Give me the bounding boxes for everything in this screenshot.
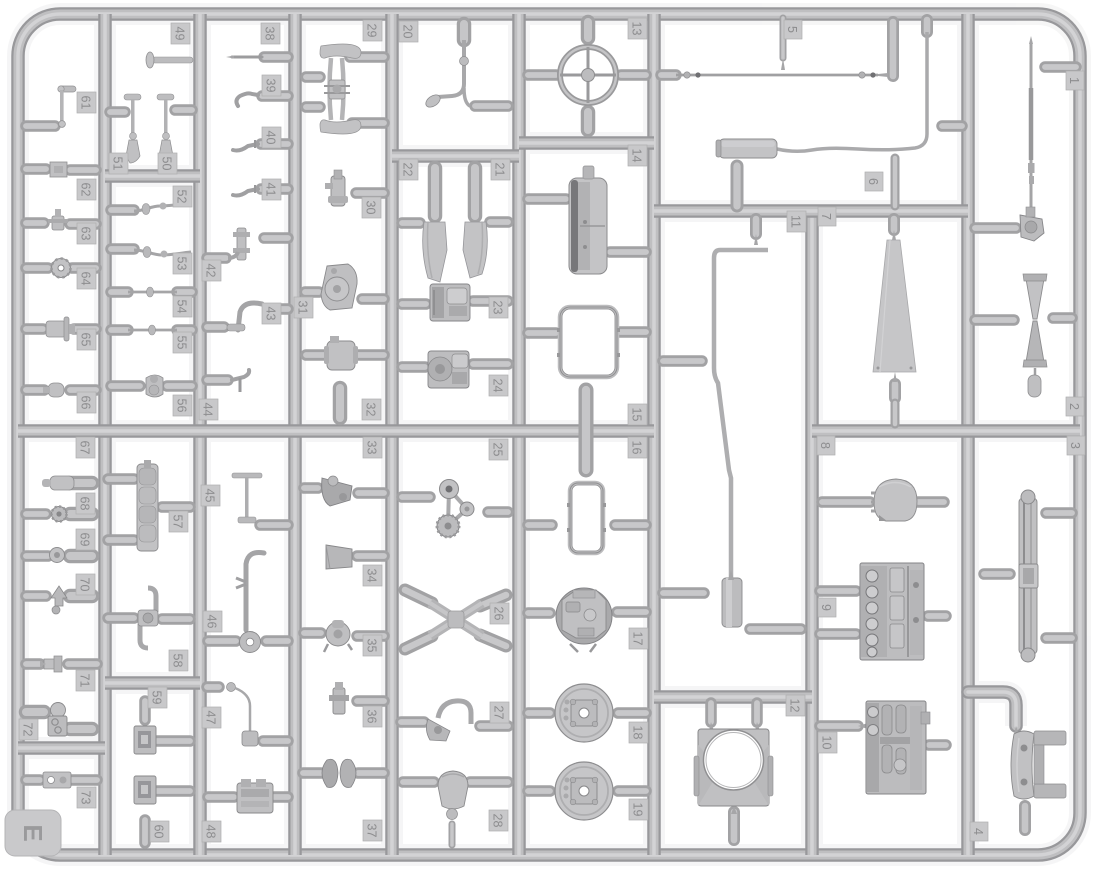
- svg-text:25: 25: [491, 443, 505, 457]
- svg-text:14: 14: [630, 149, 644, 163]
- svg-text:E: E: [18, 824, 48, 841]
- svg-text:23: 23: [491, 301, 505, 315]
- svg-text:32: 32: [364, 403, 378, 417]
- svg-text:5: 5: [785, 26, 799, 33]
- svg-text:63: 63: [79, 227, 93, 241]
- svg-text:41: 41: [264, 183, 278, 197]
- svg-text:70: 70: [78, 578, 92, 592]
- svg-text:19: 19: [631, 803, 645, 817]
- svg-text:36: 36: [365, 710, 379, 724]
- svg-text:8: 8: [818, 442, 832, 449]
- svg-text:39: 39: [264, 79, 278, 93]
- svg-text:17: 17: [631, 632, 645, 646]
- svg-text:11: 11: [789, 215, 803, 228]
- svg-text:68: 68: [78, 497, 92, 511]
- svg-text:6: 6: [866, 178, 880, 185]
- svg-text:35: 35: [365, 639, 379, 653]
- svg-text:18: 18: [631, 726, 645, 740]
- svg-text:65: 65: [79, 333, 93, 347]
- svg-text:52: 52: [175, 190, 189, 204]
- svg-text:61: 61: [79, 96, 93, 110]
- svg-text:29: 29: [365, 24, 379, 38]
- svg-text:60: 60: [152, 825, 166, 839]
- svg-text:62: 62: [79, 183, 93, 197]
- svg-text:12: 12: [788, 699, 802, 713]
- svg-text:58: 58: [171, 654, 185, 668]
- svg-text:38: 38: [263, 27, 277, 41]
- svg-text:15: 15: [630, 408, 644, 422]
- svg-text:27: 27: [492, 706, 506, 720]
- svg-text:9: 9: [819, 604, 833, 611]
- svg-text:53: 53: [175, 257, 189, 271]
- svg-text:3: 3: [1068, 442, 1082, 449]
- svg-text:50: 50: [160, 157, 174, 171]
- svg-text:57: 57: [171, 515, 185, 529]
- svg-text:42: 42: [204, 264, 218, 278]
- svg-text:34: 34: [365, 569, 379, 583]
- svg-text:43: 43: [264, 307, 278, 321]
- svg-text:33: 33: [365, 441, 379, 455]
- svg-text:54: 54: [175, 300, 189, 314]
- svg-text:71: 71: [78, 674, 92, 688]
- svg-text:55: 55: [175, 336, 189, 350]
- svg-text:73: 73: [79, 791, 93, 805]
- svg-text:22: 22: [401, 163, 415, 177]
- svg-text:31: 31: [296, 301, 310, 315]
- svg-text:28: 28: [491, 814, 505, 828]
- svg-text:30: 30: [364, 201, 378, 215]
- svg-text:26: 26: [492, 607, 506, 621]
- svg-text:4: 4: [971, 828, 985, 835]
- svg-text:67: 67: [78, 441, 92, 455]
- svg-text:46: 46: [205, 615, 219, 629]
- svg-text:72: 72: [21, 723, 35, 737]
- svg-text:10: 10: [820, 736, 834, 750]
- svg-text:47: 47: [204, 711, 218, 725]
- svg-text:45: 45: [203, 489, 217, 503]
- svg-text:69: 69: [78, 533, 92, 547]
- svg-text:2: 2: [1067, 403, 1081, 410]
- svg-text:13: 13: [630, 22, 644, 36]
- svg-text:24: 24: [491, 379, 505, 393]
- svg-text:56: 56: [175, 399, 189, 413]
- svg-text:48: 48: [204, 825, 218, 839]
- svg-text:49: 49: [173, 27, 187, 41]
- svg-text:51: 51: [111, 157, 125, 171]
- svg-text:1: 1: [1067, 77, 1081, 84]
- svg-text:7: 7: [819, 213, 833, 220]
- svg-text:66: 66: [79, 396, 93, 410]
- svg-text:16: 16: [630, 441, 644, 455]
- svg-text:44: 44: [201, 403, 215, 417]
- svg-text:21: 21: [493, 163, 507, 177]
- svg-text:64: 64: [79, 272, 93, 286]
- svg-text:37: 37: [365, 824, 379, 838]
- svg-text:59: 59: [150, 691, 164, 705]
- svg-text:40: 40: [264, 131, 278, 145]
- svg-text:20: 20: [401, 25, 415, 39]
